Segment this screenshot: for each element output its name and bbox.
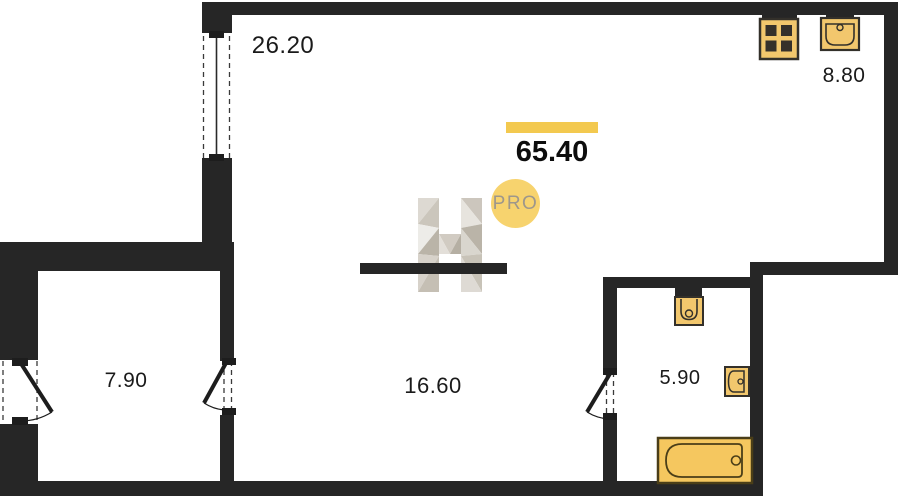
pro-badge-label: PRO	[493, 193, 539, 215]
total-area-label: 65.40	[506, 136, 598, 169]
bathroom-area-label: 5.90	[660, 367, 701, 390]
wall-room-divider-lower	[220, 415, 234, 481]
door-icon	[0, 355, 60, 427]
kitchen-sink-icon	[818, 10, 862, 52]
wall-kitchen-step	[750, 262, 898, 275]
watermark-h-logo	[418, 198, 482, 292]
wall-right	[884, 2, 898, 273]
hallway-area-label: 16.60	[404, 373, 462, 399]
living-room-area-label: 26.20	[252, 32, 315, 60]
accent-bar	[506, 122, 598, 133]
wall-left-step	[0, 242, 234, 271]
wall-bathroom-left-lower	[603, 420, 617, 481]
stove-icon	[757, 10, 801, 62]
door-icon	[195, 355, 240, 420]
wall-left-upper	[0, 271, 38, 360]
wall-room-divider-upper	[220, 271, 234, 361]
washbasin-icon	[722, 363, 756, 399]
wall-window-column-lower	[202, 158, 232, 242]
floor-plan: 65.40 PRO 26.20 8.80 7.90 16.60 5.90	[0, 0, 900, 498]
door-icon	[580, 362, 625, 424]
wall-center-partition	[360, 263, 507, 274]
kitchen-area-label: 8.80	[823, 64, 866, 88]
wall-bottom	[0, 481, 763, 496]
window-icon	[200, 28, 234, 166]
bathtub-icon	[654, 434, 756, 487]
wall-left-lower	[0, 424, 38, 481]
wall-bathroom-left-upper	[603, 277, 617, 370]
toilet-icon	[672, 280, 708, 330]
pro-badge: PRO	[491, 179, 540, 228]
room-area-label: 7.90	[105, 369, 148, 393]
